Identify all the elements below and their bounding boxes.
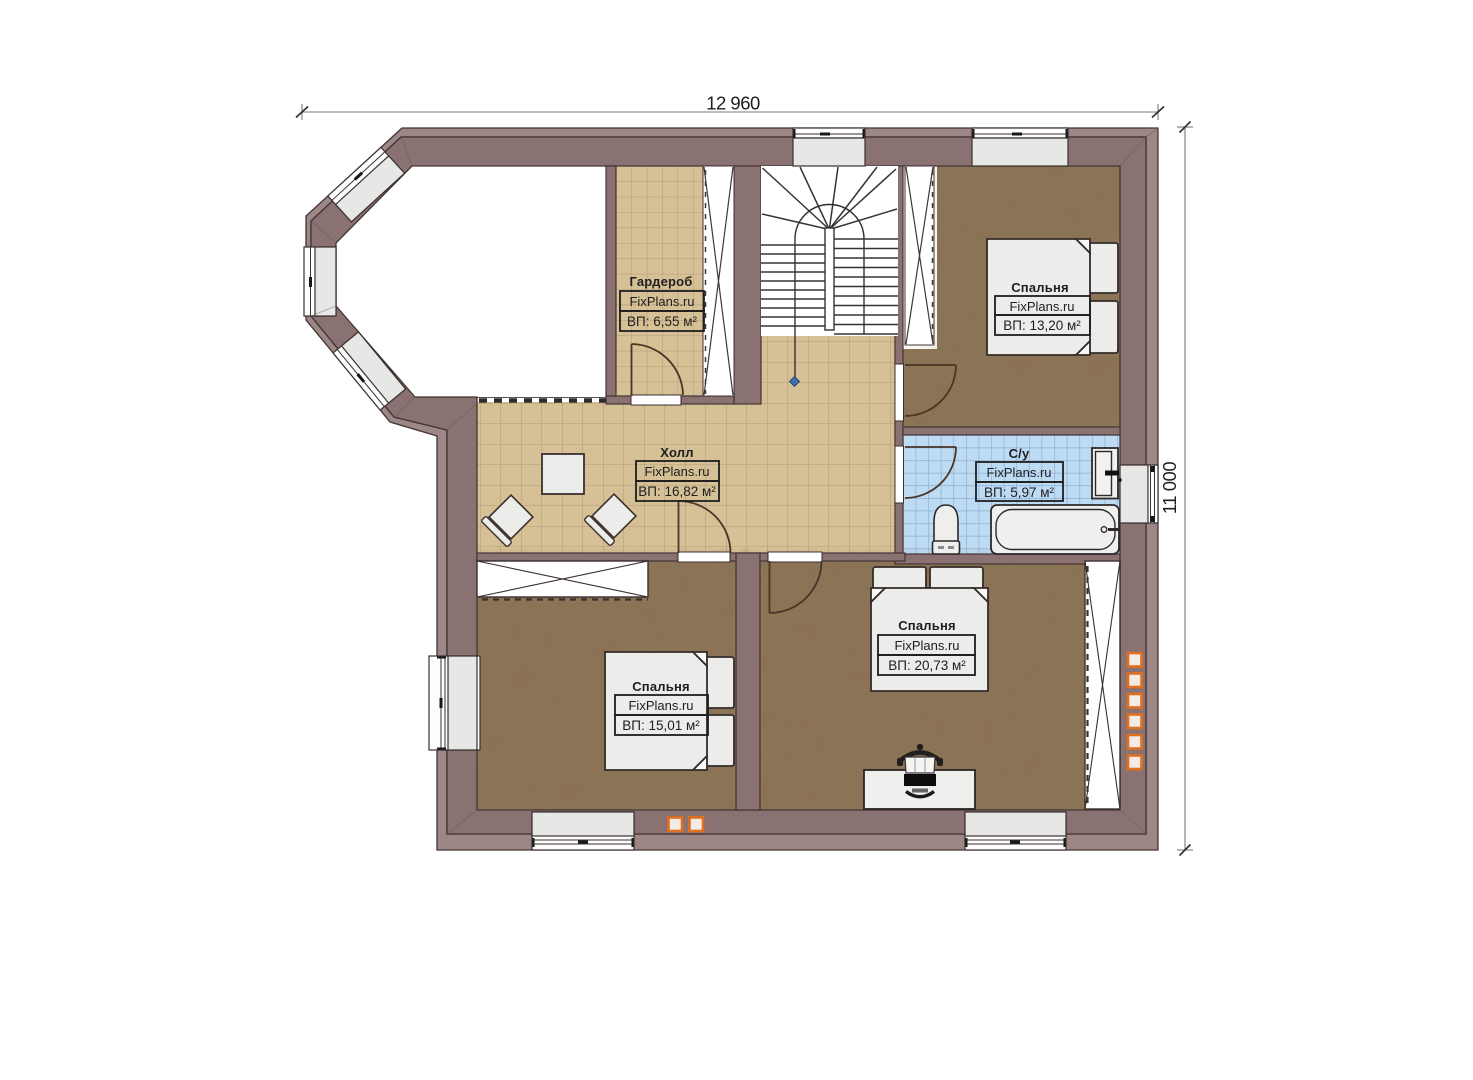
svg-text:11 000: 11 000 (1159, 462, 1180, 514)
svg-text:Спальня: Спальня (1011, 280, 1069, 295)
svg-text:Спальня: Спальня (898, 618, 956, 633)
svg-text:Спальня: Спальня (632, 679, 690, 694)
svg-text:12 960: 12 960 (706, 93, 760, 114)
svg-text:Гардероб: Гардероб (629, 274, 692, 289)
svg-text:ВП: 20,73 м²: ВП: 20,73 м² (888, 658, 966, 673)
svg-text:ВП: 6,55 м²: ВП: 6,55 м² (627, 314, 698, 329)
svg-text:FixPlans.ru: FixPlans.ru (628, 698, 693, 713)
svg-text:ВП: 16,82 м²: ВП: 16,82 м² (638, 484, 716, 499)
svg-text:FixPlans.ru: FixPlans.ru (1009, 299, 1074, 314)
svg-text:ВП: 15,01 м²: ВП: 15,01 м² (622, 718, 700, 733)
svg-text:ВП: 13,20 м²: ВП: 13,20 м² (1003, 318, 1081, 333)
svg-text:FixPlans.ru: FixPlans.ru (629, 294, 694, 309)
svg-text:ВП: 5,97 м²: ВП: 5,97 м² (984, 485, 1055, 500)
svg-text:Холл: Холл (660, 445, 693, 460)
svg-text:FixPlans.ru: FixPlans.ru (644, 464, 709, 479)
svg-text:FixPlans.ru: FixPlans.ru (894, 638, 959, 653)
svg-text:С/у: С/у (1009, 446, 1030, 461)
svg-text:FixPlans.ru: FixPlans.ru (986, 465, 1051, 480)
